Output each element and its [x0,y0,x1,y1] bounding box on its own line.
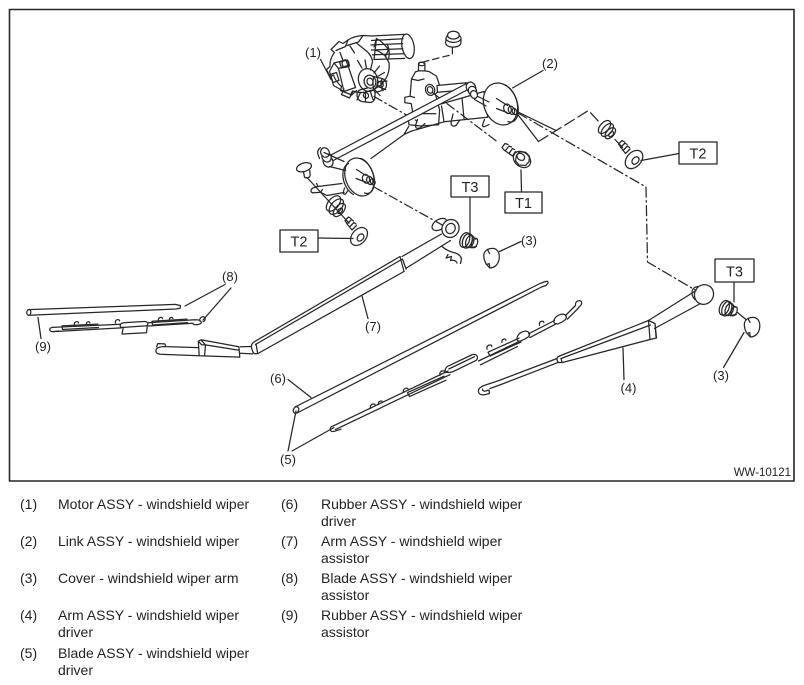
svg-text:T3: T3 [726,265,743,281]
svg-text:(6): (6) [270,371,286,386]
svg-text:(7): (7) [365,319,381,334]
svg-text:(5): (5) [280,452,296,467]
svg-text:(3): (3) [713,368,729,383]
svg-text:T2: T2 [291,235,308,251]
svg-text:T2: T2 [690,147,707,163]
svg-text:(4): (4) [621,381,637,396]
svg-text:(8): (8) [222,269,238,284]
svg-text:WW-10121: WW-10121 [734,467,791,479]
svg-text:T3: T3 [462,180,479,196]
svg-text:(9): (9) [35,339,51,354]
svg-text:(2): (2) [542,56,558,71]
svg-text:(3): (3) [521,233,537,248]
svg-text:(1): (1) [305,45,321,60]
svg-text:T1: T1 [515,196,532,212]
